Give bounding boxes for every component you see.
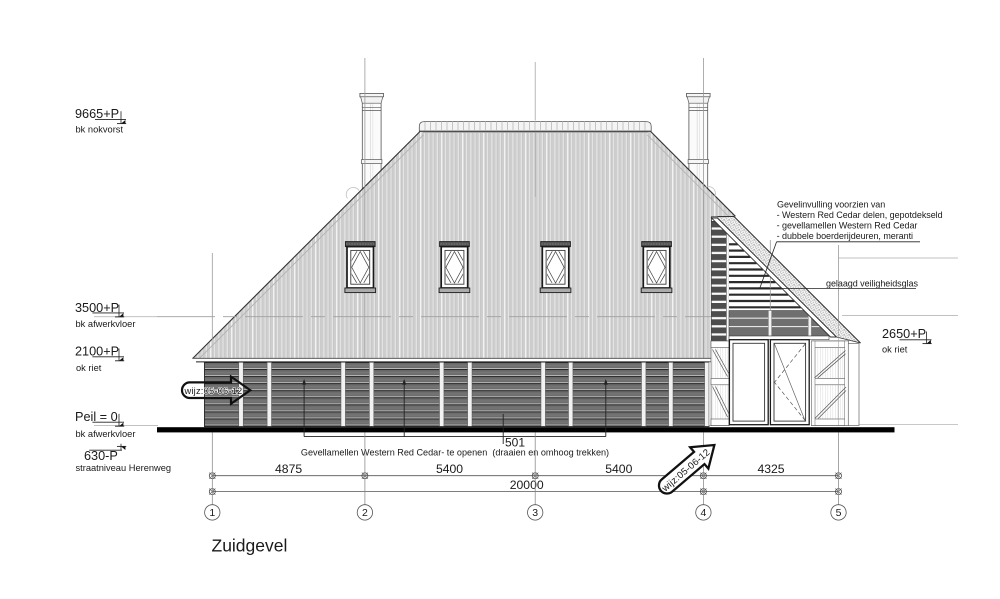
- svg-text:4325: 4325: [757, 462, 784, 476]
- svg-text:straatniveau Herenweg: straatniveau Herenweg: [76, 463, 172, 473]
- svg-text:gelaagd veiligheidsglas: gelaagd veiligheidsglas: [826, 278, 918, 288]
- svg-text:bk afwerkvloer: bk afwerkvloer: [76, 429, 136, 439]
- svg-text:bk afwerkvloer: bk afwerkvloer: [76, 319, 136, 329]
- svg-text:ok riet: ok riet: [882, 344, 908, 354]
- svg-text:630-P: 630-P: [84, 449, 118, 463]
- svg-text:- Western Red Cedar delen, gep: - Western Red Cedar delen, gepotdekseld: [777, 210, 943, 220]
- svg-text:3: 3: [532, 507, 538, 519]
- svg-text:bk nokvorst: bk nokvorst: [76, 125, 124, 135]
- svg-text:Gevelinvulling voorzien van: Gevelinvulling voorzien van: [777, 199, 885, 209]
- svg-text:Gevellamellen Western Red Ceda: Gevellamellen Western Red Cedar- te open…: [301, 447, 609, 457]
- svg-text:- dubbele boerderijdeuren, mer: - dubbele boerderijdeuren, meranti: [777, 231, 913, 241]
- svg-text:4875: 4875: [275, 462, 302, 476]
- svg-text:5: 5: [836, 507, 842, 519]
- svg-text:20000: 20000: [510, 478, 544, 492]
- svg-text:1: 1: [209, 507, 215, 519]
- svg-text:Zuidgevel: Zuidgevel: [212, 536, 288, 556]
- svg-text:wijz:05-06-12: wijz:05-06-12: [184, 386, 243, 396]
- svg-text:ok riet: ok riet: [76, 363, 102, 373]
- svg-text:4: 4: [700, 507, 706, 519]
- svg-text:9665+P: 9665+P: [75, 107, 119, 121]
- svg-text:5400: 5400: [605, 462, 632, 476]
- svg-text:5400: 5400: [436, 462, 463, 476]
- svg-text:- gevellamellen Western Red Ce: - gevellamellen Western Red Cedar: [777, 220, 918, 230]
- svg-text:2650+P: 2650+P: [882, 327, 926, 341]
- svg-text:2: 2: [362, 507, 368, 519]
